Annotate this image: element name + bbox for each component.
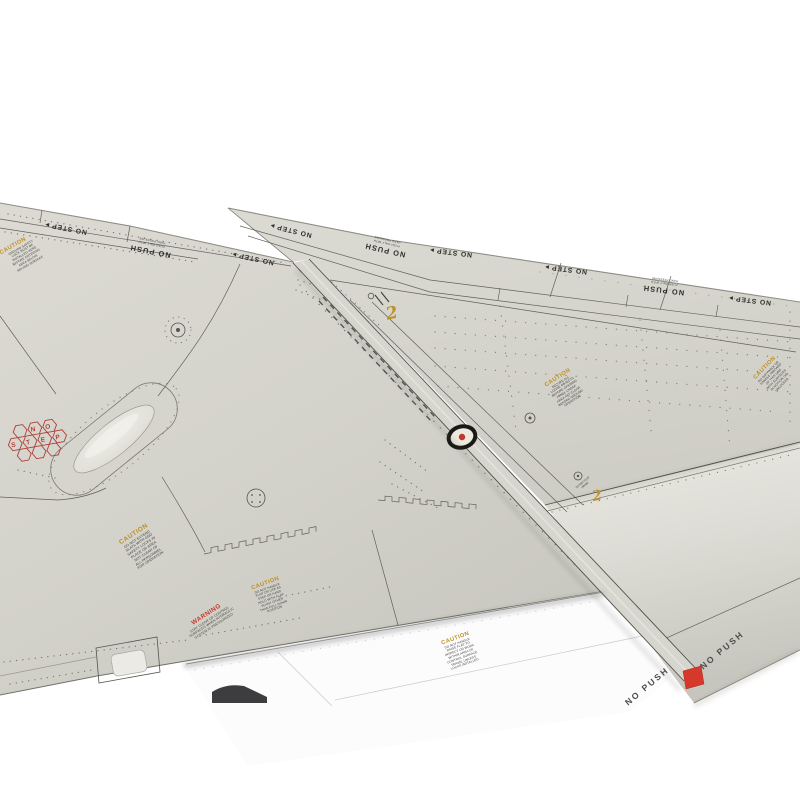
direction-arrow-icon [270,223,275,228]
direction-arrow-icon [729,296,733,300]
direction-arrow-icon [232,252,236,256]
direction-arrow-icon [45,222,49,226]
product-photo-model-wing: N O S T E P [0,0,800,800]
direction-arrow-icon [545,265,549,269]
wing-illustration: N O S T E P [0,0,800,800]
no-step-text: NO STEP [735,295,772,307]
no-step-text: NO STEP [551,264,588,276]
no-step-text: NO STEP [436,247,473,259]
direction-arrow-icon [430,248,434,252]
